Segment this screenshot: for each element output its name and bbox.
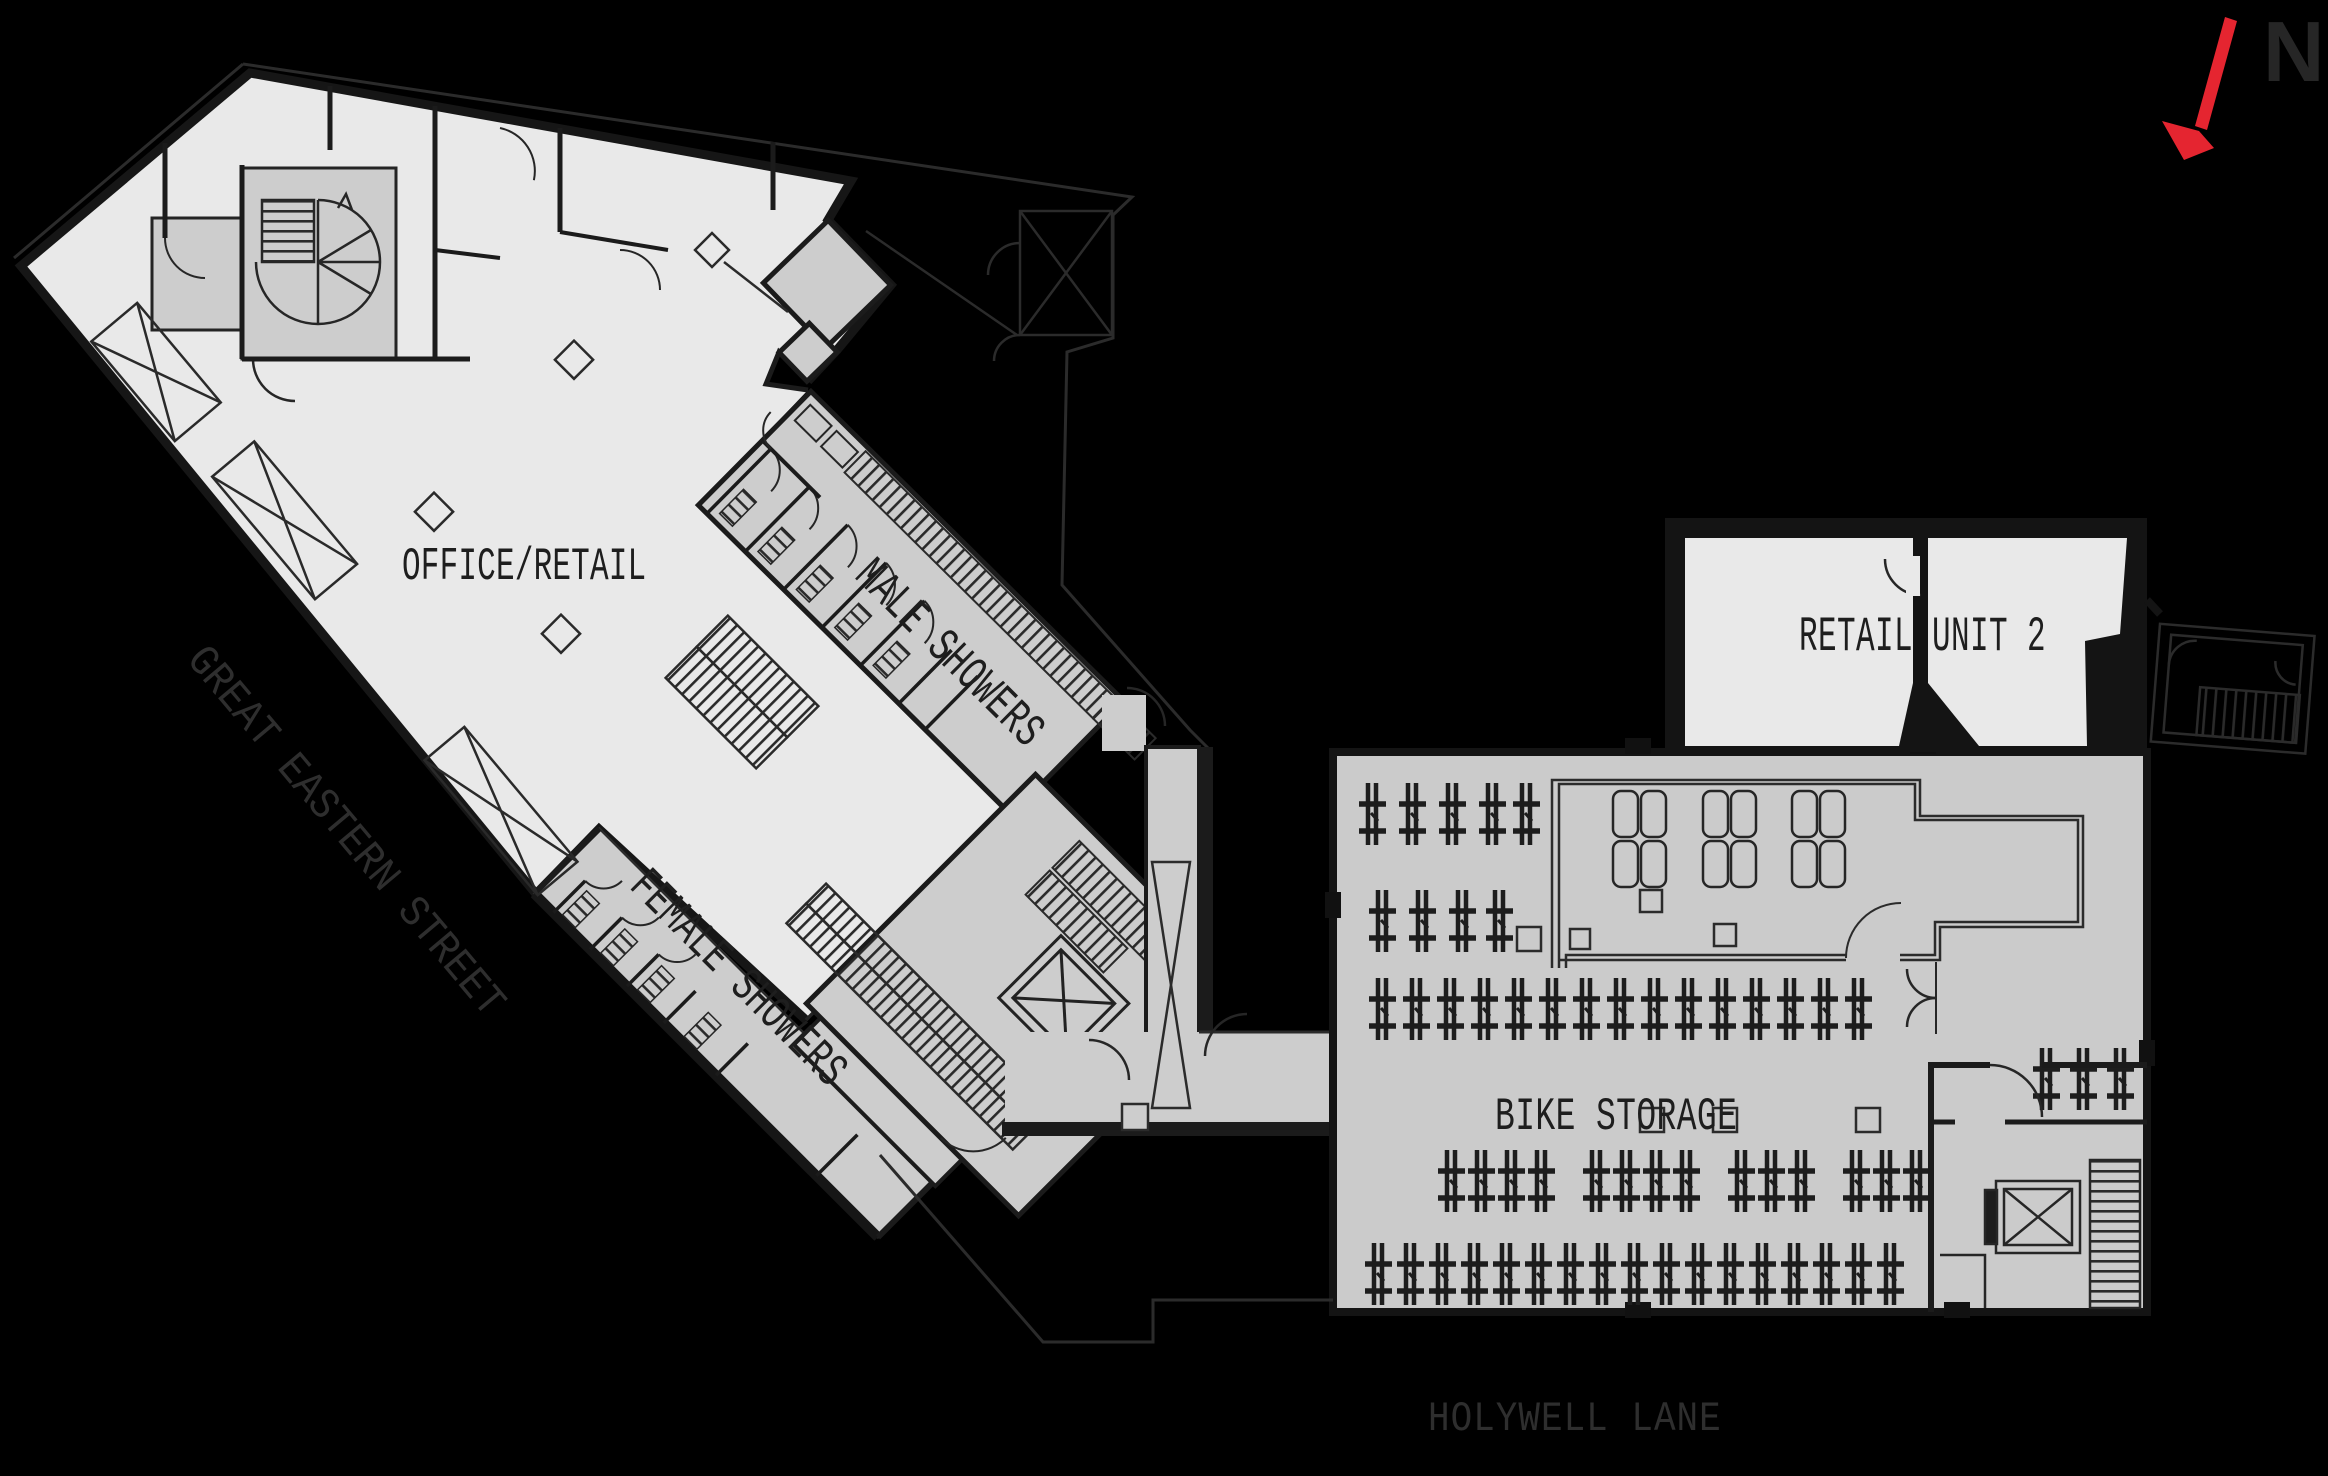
svg-text:OFFICE/RETAIL: OFFICE/RETAIL [402,540,646,593]
svg-text:RETAIL UNIT 2: RETAIL UNIT 2 [1799,610,2046,665]
svg-text:HOLYWELL LANE: HOLYWELL LANE [1428,1396,1722,1443]
svg-text:N: N [2263,5,2324,100]
svg-text:BIKE STORAGE: BIKE STORAGE [1495,1092,1737,1144]
